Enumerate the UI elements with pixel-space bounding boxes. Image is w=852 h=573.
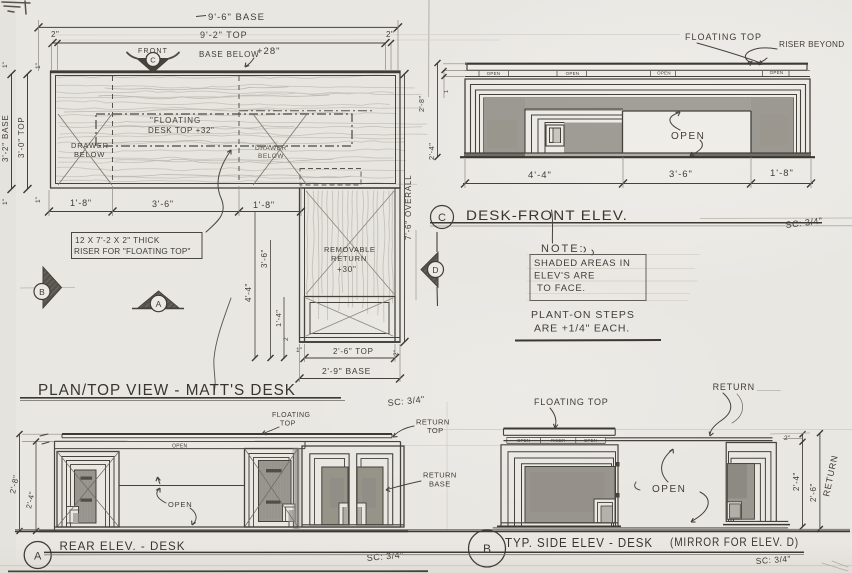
svg-text:RISER BEYOND: RISER BEYOND xyxy=(779,40,844,49)
svg-text:3'-6": 3'-6" xyxy=(152,199,174,209)
svg-text:2: 2 xyxy=(283,337,290,341)
svg-text:3'-6": 3'-6" xyxy=(260,249,269,268)
svg-text:SHADED AREAS IN: SHADED AREAS IN xyxy=(534,258,631,269)
svg-text:C: C xyxy=(150,56,156,65)
svg-text:BASE BELOW: BASE BELOW xyxy=(199,50,259,59)
svg-text:OPEN: OPEN xyxy=(657,71,671,76)
svg-text:12 X 7'-2 X 2" THICK: 12 X 7'-2 X 2" THICK xyxy=(75,236,160,245)
svg-text:OPEN: OPEN xyxy=(770,70,784,75)
svg-text:2'-4": 2'-4" xyxy=(792,472,801,491)
svg-text:DRAWER: DRAWER xyxy=(71,141,109,150)
svg-text:1: 1 xyxy=(444,90,450,93)
svg-text:RETURN: RETURN xyxy=(423,471,457,480)
svg-text:NOTE:: NOTE: xyxy=(541,243,585,255)
svg-text:ARE +1/4" EACH.: ARE +1/4" EACH. xyxy=(534,323,630,335)
svg-text:9'-6" BASE: 9'-6" BASE xyxy=(208,12,265,23)
svg-text:REMOVABLE: REMOVABLE xyxy=(324,245,376,254)
svg-text:PLANT-ON STEPS: PLANT-ON STEPS xyxy=(531,309,635,321)
svg-text:3'-6": 3'-6" xyxy=(669,169,693,180)
svg-text:BELOW: BELOW xyxy=(74,150,105,159)
svg-text:D: D xyxy=(432,265,438,275)
svg-text:REAR ELEV. - DESK: REAR ELEV. - DESK xyxy=(60,541,186,553)
svg-text:1": 1" xyxy=(2,198,9,205)
svg-text:1'-8": 1'-8" xyxy=(770,168,794,179)
svg-text:1": 1" xyxy=(2,61,9,68)
svg-text:B: B xyxy=(483,542,491,556)
svg-text:FLOATING: FLOATING xyxy=(272,412,310,419)
svg-text:PLAN/TOP VIEW - MATT'S DESK: PLAN/TOP VIEW - MATT'S DESK xyxy=(38,382,296,399)
svg-text:ELEV'S ARE: ELEV'S ARE xyxy=(534,271,595,282)
svg-text:1": 1" xyxy=(35,196,42,203)
svg-text:+28": +28" xyxy=(257,46,281,57)
svg-text:A: A xyxy=(34,551,42,563)
svg-text:9'-2" TOP: 9'-2" TOP xyxy=(200,30,248,40)
svg-text:4'-4": 4'-4" xyxy=(528,170,552,181)
svg-text:OPEN: OPEN xyxy=(566,71,580,76)
svg-text:1'-4": 1'-4" xyxy=(274,310,283,327)
svg-text:+30": +30" xyxy=(337,265,357,274)
svg-text:2'-8": 2'-8" xyxy=(419,96,426,112)
svg-text:2'-6" TOP: 2'-6" TOP xyxy=(333,347,374,356)
svg-text:BASE: BASE xyxy=(429,480,451,489)
svg-text:FLOATING TOP: FLOATING TOP xyxy=(685,32,762,42)
svg-text:OPEN: OPEN xyxy=(652,484,686,495)
svg-text:DESK-FRONT ELEV.: DESK-FRONT ELEV. xyxy=(466,208,628,223)
svg-text:1": 1" xyxy=(35,62,42,69)
svg-text:4'-4": 4'-4" xyxy=(244,283,253,302)
svg-text:TOP: TOP xyxy=(280,421,296,428)
svg-text:B: B xyxy=(39,287,45,297)
svg-text:2": 2" xyxy=(393,349,400,356)
svg-text:(MIRROR FOR ELEV. D): (MIRROR FOR ELEV. D) xyxy=(670,535,799,549)
svg-text:2'-4": 2'-4" xyxy=(427,143,436,160)
svg-text:"FLOATING: "FLOATING xyxy=(150,116,201,125)
svg-text:2'-9" BASE: 2'-9" BASE xyxy=(322,366,371,376)
svg-text:DESK TOP +32": DESK TOP +32" xyxy=(148,126,214,135)
svg-text:RETURN: RETURN xyxy=(331,254,367,263)
svg-text:2'-6": 2'-6" xyxy=(809,483,818,502)
svg-text:C: C xyxy=(438,212,446,224)
svg-text:TO FACE.: TO FACE. xyxy=(537,283,586,294)
svg-text:TYP. SIDE ELEV - DESK: TYP. SIDE ELEV - DESK xyxy=(505,536,653,550)
svg-text:1'-8": 1'-8" xyxy=(253,200,275,210)
svg-text:7'-6" OVERALL: 7'-6" OVERALL xyxy=(404,175,413,240)
svg-text:2": 2" xyxy=(784,435,791,442)
svg-text:BELOW: BELOW xyxy=(258,153,284,160)
svg-text:OPEN: OPEN xyxy=(168,500,192,509)
svg-text:OPEN: OPEN xyxy=(172,443,187,449)
svg-text:OPEN: OPEN xyxy=(487,71,501,76)
svg-text:3'-2" BASE: 3'-2" BASE xyxy=(1,115,10,163)
svg-text:DRAWER: DRAWER xyxy=(255,145,287,152)
svg-text:2": 2" xyxy=(386,30,394,39)
svg-text:FLOATING TOP: FLOATING TOP xyxy=(534,397,609,407)
svg-text:RISER FOR "FLOATING TOP": RISER FOR "FLOATING TOP" xyxy=(74,247,191,256)
svg-text:A: A xyxy=(156,299,162,309)
svg-text:3'-0" TOP: 3'-0" TOP xyxy=(17,116,26,158)
svg-text:1'-8": 1'-8" xyxy=(70,198,92,208)
svg-text:RETURN: RETURN xyxy=(713,382,755,392)
svg-text:2": 2" xyxy=(51,30,59,39)
svg-text:TOP: TOP xyxy=(427,426,443,435)
